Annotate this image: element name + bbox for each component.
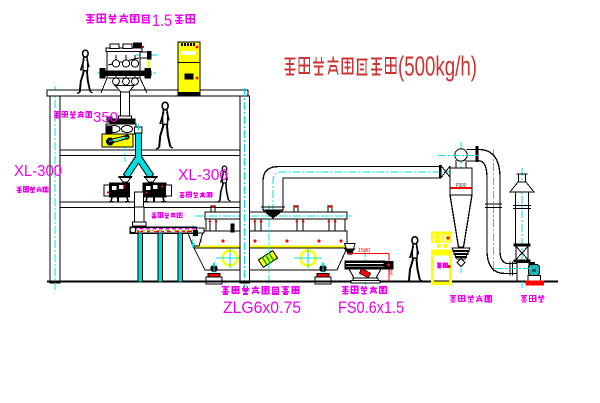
svg-text:1.5: 1.5 <box>152 11 172 30</box>
svg-text:ZLG6x0.75: ZLG6x0.75 <box>223 299 301 317</box>
svg-text:XL-300: XL-300 <box>14 163 62 180</box>
svg-text:350: 350 <box>93 109 118 126</box>
svg-text:(500kg/h): (500kg/h) <box>398 51 477 82</box>
svg-text:1500: 1500 <box>358 248 370 254</box>
svg-text:XL-300: XL-300 <box>178 167 228 184</box>
svg-text:FS0.6x1.5: FS0.6x1.5 <box>338 299 404 317</box>
